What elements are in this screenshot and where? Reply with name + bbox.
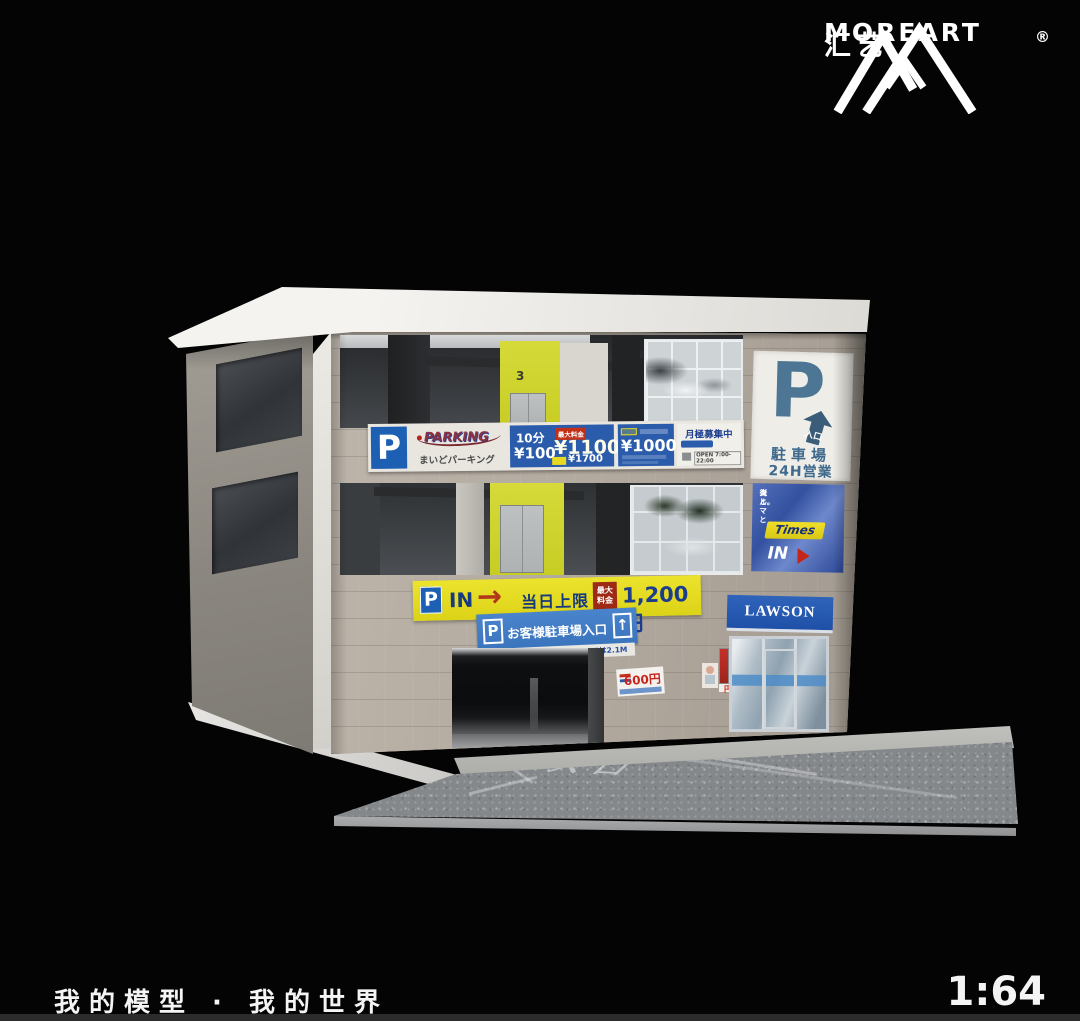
in-label: IN (449, 588, 474, 613)
wall-window (212, 472, 298, 575)
brand-cjk-name: 汇艺 (824, 24, 888, 63)
monthly-icon (682, 453, 691, 461)
times-sign: 人と クルマと 街と。 Times IN (751, 483, 845, 573)
rate-panel-2: ¥1000 (618, 424, 674, 467)
max-tag-line2: 料金 (593, 596, 617, 607)
customer-sign-label: お客様駐車場入口 (507, 619, 608, 643)
floor2-interior (340, 483, 743, 575)
garage-entrance (452, 648, 588, 748)
storefront-glass (729, 636, 829, 732)
times-brand: Times (764, 521, 825, 539)
poster-face (706, 666, 714, 674)
tagline-line3: 街と。 (759, 488, 774, 506)
max-fee-tag: 最大 料金 (593, 582, 618, 611)
bottom-divider (0, 1014, 1080, 1021)
alt-fee-tag (552, 457, 566, 465)
poster-person (702, 663, 718, 688)
fine-print (622, 461, 658, 464)
up-arrow-icon: ↑ (612, 613, 632, 639)
parking-p-badge: P (482, 618, 503, 644)
steel-pillar (596, 483, 630, 575)
entrance-floor (452, 734, 588, 748)
brand-logo: ® MOREART 汇艺 (824, 22, 1056, 182)
rate-panel-1: 10分 ¥100 最大料金 ¥1100 ¥1700 (510, 424, 614, 467)
parking-subtitle: まいどパーキング (419, 452, 495, 467)
big-p-letter: P (752, 345, 844, 436)
times-logo: Times (764, 521, 825, 539)
interior-wall (560, 343, 608, 428)
door-split (522, 506, 523, 572)
lane-marking (669, 756, 957, 799)
fine-print (622, 455, 666, 459)
rate-price: ¥100 (514, 444, 556, 462)
registered-mark: ® (1035, 28, 1050, 46)
fine-print (640, 429, 668, 434)
play-triangle-icon (797, 548, 809, 564)
interior-windows (644, 339, 743, 428)
elevator-door (500, 505, 544, 573)
rate-price: ¥1000 (621, 436, 677, 456)
floor3-interior: 3 (340, 335, 743, 428)
front-facade: 3 P PARKING まいどパーキング 10分 ¥100 最大料金 ¥1100 (331, 330, 867, 754)
in-label: IN (767, 543, 788, 563)
parking-p-badge: P (420, 586, 443, 613)
lawson-store: LAWSON (727, 596, 833, 732)
concrete-pillar (456, 483, 484, 575)
lawson-name: LAWSON (727, 595, 834, 630)
entrance-interior-pillar (530, 678, 538, 733)
facade-shadow (833, 330, 867, 754)
left-wall (186, 330, 313, 754)
lane-marking (469, 776, 538, 796)
lawson-sign: LAWSON (727, 595, 834, 633)
poster-600: 600円 (616, 666, 665, 696)
corner-pillar (313, 330, 331, 750)
entrance-column (588, 648, 604, 746)
monthly-bar (681, 440, 713, 447)
monthly-label: 月極募集中 (677, 426, 741, 441)
right-arrow-icon: → (477, 579, 503, 615)
floor-number: 3 (516, 369, 524, 383)
wall-window (216, 348, 302, 453)
store-door (764, 649, 797, 729)
steel-pillar (388, 335, 430, 428)
max-tag-line1: 最大 (593, 586, 617, 597)
entrance-ceiling (452, 648, 588, 656)
steel-pillar (612, 335, 644, 428)
parking-sign-band: P PARKING まいどパーキング 10分 ¥100 最大料金 ¥1100 ¥… (368, 420, 744, 472)
facade-shadow (331, 330, 347, 754)
product-photo: ® MOREART 汇艺 入口 3 (0, 0, 1080, 1021)
poster-body (705, 675, 715, 684)
interior-windows (630, 485, 743, 575)
fee-tag (621, 428, 637, 435)
open-hours: OPEN 7:00-22:00 (694, 451, 741, 465)
parking-p-badge: P (371, 427, 407, 469)
scale-label: 1:64 (947, 969, 1047, 1015)
vending-machine (719, 648, 729, 684)
parking-logo: PARKING まいどパーキング (409, 426, 507, 469)
alt-fee-price: ¥1700 (568, 454, 603, 465)
monthly-panel: 月極募集中 OPEN 7:00-22:00 (677, 423, 741, 466)
